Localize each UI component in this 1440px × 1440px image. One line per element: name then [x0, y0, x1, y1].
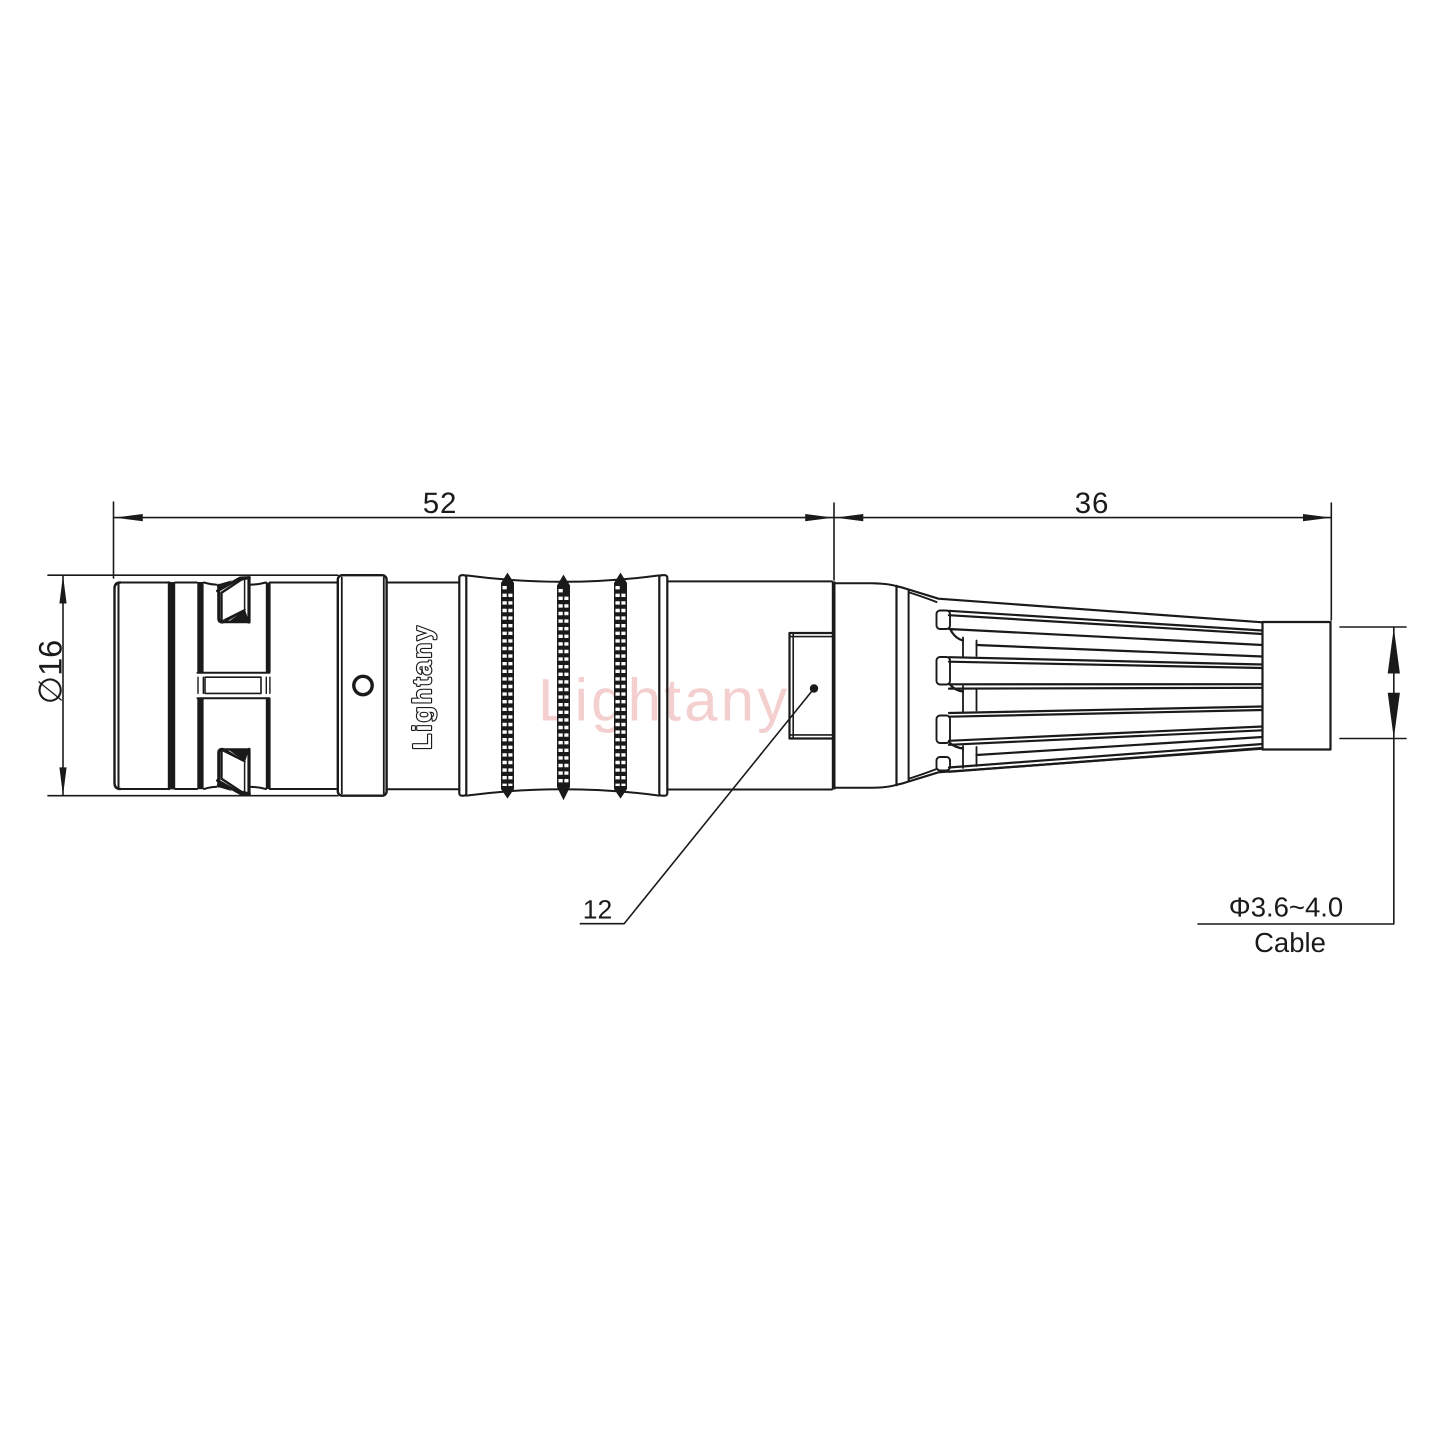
- svg-text:12: 12: [583, 894, 612, 924]
- svg-text:36: 36: [1075, 487, 1109, 520]
- svg-text:Cable: Cable: [1254, 927, 1326, 958]
- svg-text:Lightany: Lightany: [407, 624, 437, 750]
- svg-text:Lightany: Lightany: [538, 667, 790, 734]
- svg-text:Φ3.6~4.0: Φ3.6~4.0: [1229, 892, 1343, 923]
- svg-text:52: 52: [423, 487, 457, 520]
- svg-text:∅16: ∅16: [33, 640, 69, 704]
